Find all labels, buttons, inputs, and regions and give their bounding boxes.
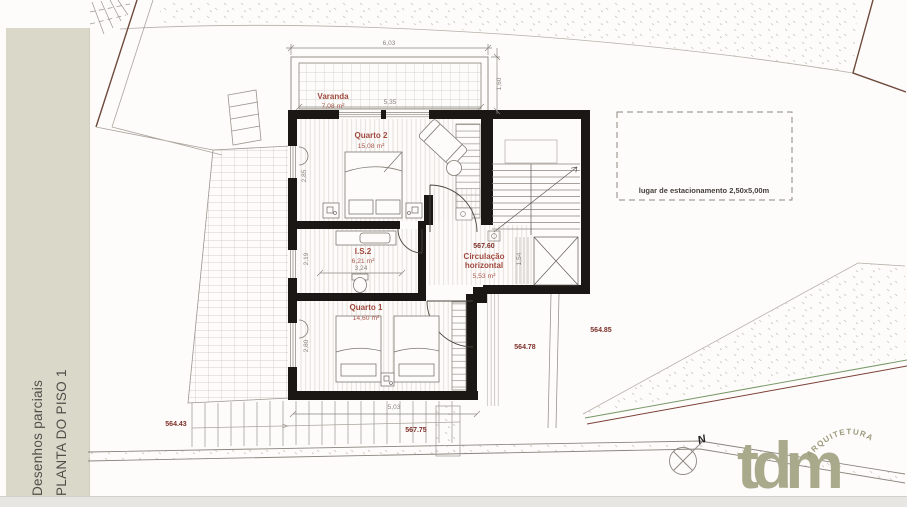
circulacao-name-2: horizontal — [465, 261, 503, 270]
dim-varanda-width: 5,35 — [384, 99, 397, 106]
varanda-area: 7,08 m² — [321, 103, 345, 110]
level-west: 564.43 — [165, 421, 187, 428]
circulacao-level: 567.60 — [473, 243, 495, 250]
dim-varanda-depth: 1,60 — [496, 77, 503, 90]
is2-area: 6,21 m² — [351, 258, 375, 265]
quarto2-area: 15,08 m² — [358, 143, 386, 150]
level-east-near: 564.78 — [514, 344, 536, 351]
level-east-far: 564.85 — [590, 327, 612, 334]
level-south: 567.75 — [405, 427, 427, 434]
north-arrow: N — [670, 433, 709, 475]
architect-logo: tdm ARQUITETURA — [737, 427, 875, 502]
circulacao-name-1: Circulação — [464, 252, 505, 261]
floor-plan-svg: lugar de estacionamento 2,50x5,00m — [0, 0, 907, 506]
dim-quarto2-depth: 2,85 — [301, 169, 308, 182]
quarto1-area: 14,60 m² — [353, 315, 381, 322]
quarto2-name: Quarto 2 — [355, 131, 388, 140]
varanda-name: Varanda — [317, 92, 349, 101]
circulacao-area: 5,53 m² — [472, 273, 496, 280]
parking-label: lugar de estacionamento 2,50x5,00m — [639, 186, 770, 195]
dim-is2-width: 3,24 — [355, 265, 368, 272]
dim-quarto1-width: 5,03 — [388, 404, 401, 411]
dim-stair-width: 1,54 — [516, 252, 523, 265]
is2-name: I.S.2 — [355, 247, 372, 256]
parking-space: lugar de estacionamento 2,50x5,00m — [617, 112, 792, 200]
dim-is2-depth: 2,19 — [303, 252, 310, 265]
bottom-edge-bar — [0, 496, 907, 507]
dim-total-width: 6,03 — [383, 40, 396, 47]
dim-quarto1-depth: 2,80 — [303, 339, 310, 352]
quarto1-name: Quarto 1 — [350, 303, 383, 312]
